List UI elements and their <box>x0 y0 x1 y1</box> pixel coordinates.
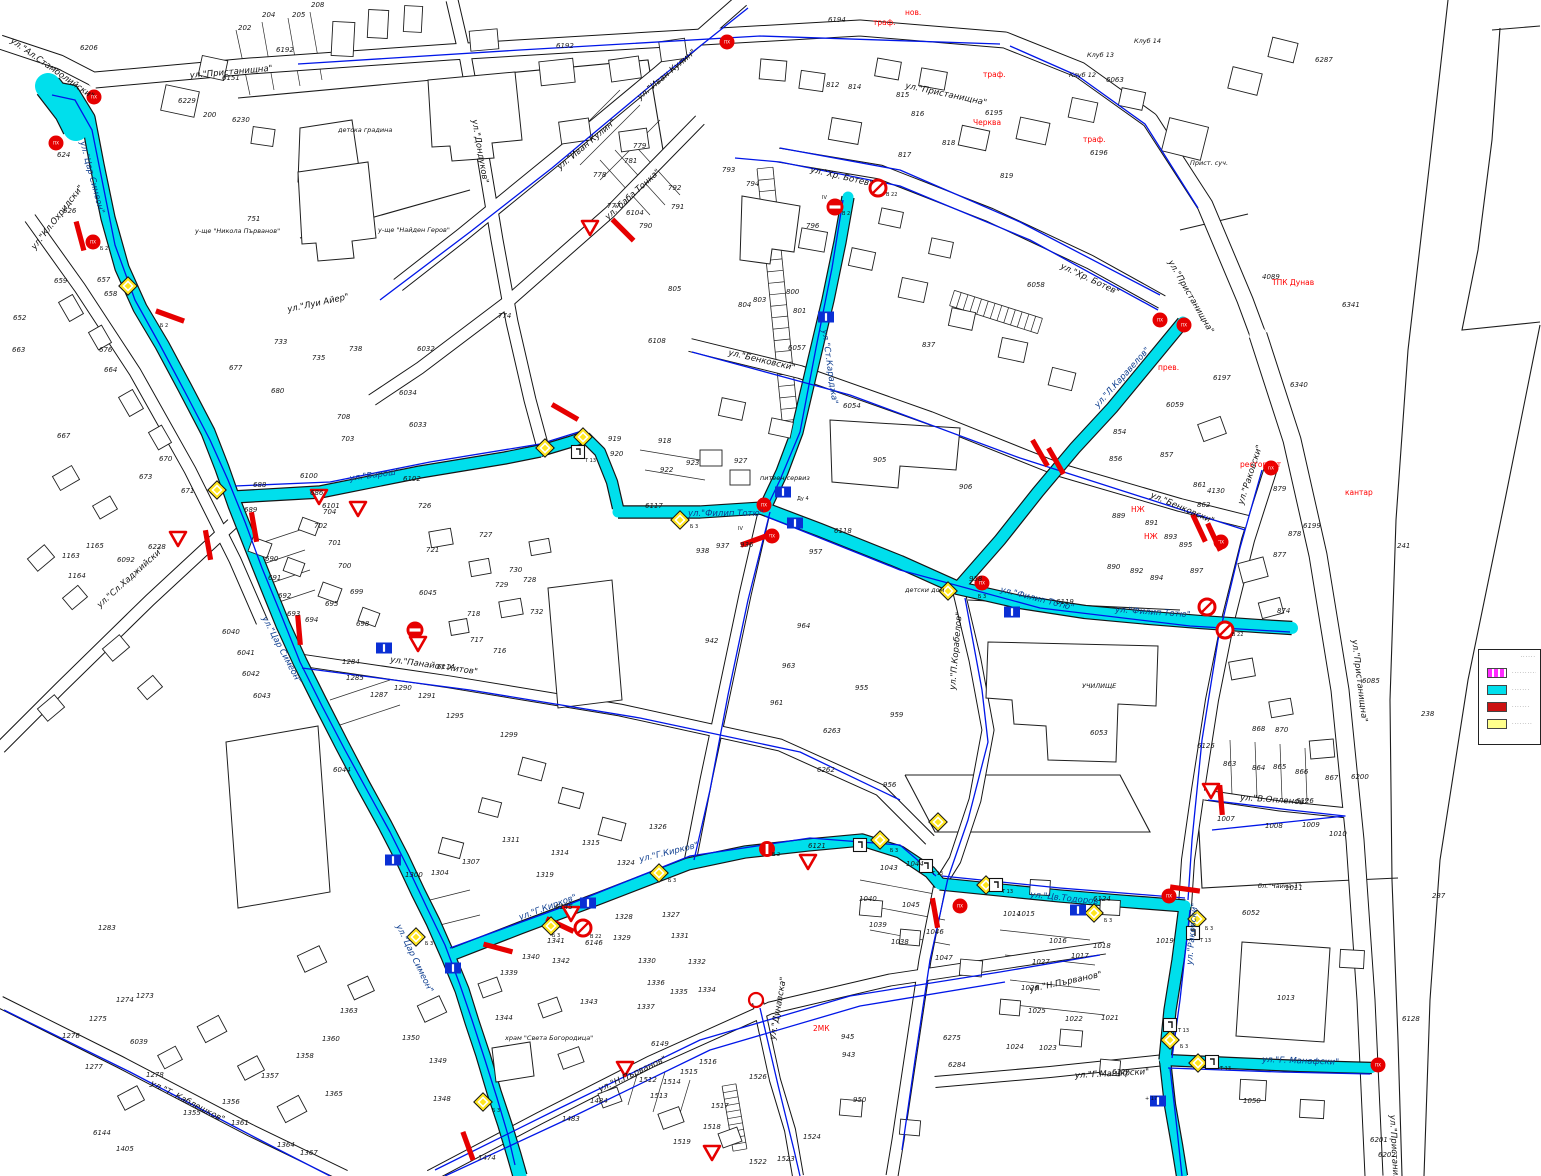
parcel-number: 6034 <box>399 389 417 397</box>
parcel-number: 905 <box>873 456 887 464</box>
parcel-number: 200 <box>203 111 217 119</box>
parcel-number: 677 <box>229 364 243 372</box>
parcel-number: 1026 <box>1021 984 1039 992</box>
parcel-number: 1328 <box>615 913 633 921</box>
svg-text:ПХ: ПХ <box>1181 323 1187 328</box>
parcel-number: 1349 <box>429 1057 447 1065</box>
parcel-number: 1329 <box>613 934 631 942</box>
parcel-number: 673 <box>139 473 152 481</box>
parcel-number: 942 <box>705 637 719 645</box>
red-annotation: прев. <box>1158 363 1179 372</box>
parcel-number: 6117 <box>645 502 663 510</box>
parcel-number: 1315 <box>582 839 600 847</box>
sign-code-label: Ду 4 <box>797 496 809 502</box>
parcel-number: 6118 <box>834 527 852 535</box>
parcel-number: 1512 <box>639 1076 657 1084</box>
parcel-number: 1356 <box>222 1098 240 1106</box>
parcel-number: 1287 <box>370 691 388 699</box>
parcel-number: 689 <box>244 506 258 514</box>
parcel-number: 6200 <box>1351 773 1369 781</box>
parcel-number: 1513 <box>650 1092 668 1100</box>
give-way-icon <box>350 502 366 516</box>
parcel-number: 6262 <box>817 766 835 774</box>
parcel-number: 698 <box>356 620 370 628</box>
chamber-icon <box>854 839 867 852</box>
parcel-number: 1324 <box>617 859 635 867</box>
parcel-number: 1008 <box>1265 822 1283 830</box>
parcel-number: 1334 <box>698 986 716 994</box>
parcel-number: 6119 <box>1056 598 1074 606</box>
parcel-number: 1327 <box>662 911 680 919</box>
legend-swatch-red <box>1487 702 1507 712</box>
parcel-number: 691 <box>268 574 281 582</box>
parcel-number: 6229 <box>178 97 196 105</box>
parcel-number: 1021 <box>1101 1014 1119 1022</box>
parcel-number: 1023 <box>1039 1044 1057 1052</box>
parcel-number: 708 <box>337 413 351 421</box>
parcel-number: 1047 <box>935 954 953 962</box>
parcel-number: 6058 <box>1027 281 1045 289</box>
hydrant-flag-icon <box>775 487 791 498</box>
parcel-number: 1358 <box>296 1052 314 1060</box>
parcel-number: 1355 <box>183 1109 201 1117</box>
parcel-number: 1331 <box>671 932 689 940</box>
parcel-number: 877 <box>1273 551 1287 559</box>
parcel-number: 624 <box>57 151 70 159</box>
crossing-bar-icon <box>611 218 636 243</box>
map-canvas[interactable]: ПХПХПХПХПХПХПХПХПХПХПХПХПХПХул."Ал.Стамб… <box>0 0 1541 1176</box>
parcel-number: 6197 <box>1213 374 1231 382</box>
parcel-number: 1040 <box>859 895 877 903</box>
parcel-number: 794 <box>746 180 759 188</box>
parcel-number: 1307 <box>462 858 480 866</box>
parcel-number: 964 <box>797 622 810 630</box>
parcel-number: 6102 <box>403 475 421 483</box>
chamber-icon <box>990 879 1003 892</box>
parcel-number: 690 <box>265 555 279 563</box>
sign-code-label: Т 13 <box>1177 1028 1189 1034</box>
buildings <box>27 6 1364 1148</box>
parcel-number: 781 <box>624 157 637 165</box>
parcel-number: 865 <box>1273 763 1287 771</box>
parcel-number: 6206 <box>80 44 98 52</box>
chamber-icon <box>572 446 585 459</box>
parcel-number: 1526 <box>749 1073 767 1081</box>
parcel-number: 1332 <box>688 958 706 966</box>
red-annotation: ресторант <box>1240 460 1282 469</box>
parcel-number: 864 <box>1252 764 1265 772</box>
parcel-number: 6202 <box>1378 1151 1396 1159</box>
parcel-number: 6196 <box>1090 149 1108 157</box>
hydrant-icon: ПХ <box>1371 1058 1386 1073</box>
sign-code-label: Б 3 <box>1205 926 1213 932</box>
parcel-number: 6057 <box>788 344 806 352</box>
parcel-number: 6128 <box>1402 1015 1420 1023</box>
parcel-number: 817 <box>898 151 912 159</box>
parcel-number: 792 <box>668 184 682 192</box>
svg-text:ПХ: ПХ <box>724 40 730 45</box>
parcel-number: 814 <box>848 83 861 91</box>
chamber-icon <box>1164 1019 1177 1032</box>
parcel-number: 943 <box>842 1051 855 1059</box>
give-way-icon <box>800 855 816 869</box>
parcel-number: 861 <box>1193 481 1206 489</box>
parcel-number: 1300 <box>405 871 423 879</box>
parcel-number: 1523 <box>777 1155 795 1163</box>
parcel-number: 1283 <box>98 924 116 932</box>
parcel-number: 688 <box>253 481 267 489</box>
parcel-number: 1019 <box>1156 937 1174 945</box>
parcel-number: 803 <box>753 296 766 304</box>
priority-road-sign-icon <box>929 813 947 831</box>
parcel-number: 1274 <box>116 996 134 1004</box>
parcel-number: 6100 <box>300 472 318 480</box>
poi-label: питеен сервиз <box>760 474 810 482</box>
sign-code-label: Б 3 <box>1180 1044 1188 1050</box>
parcel-number: 1017 <box>1071 952 1089 960</box>
sign-code-label: Б 3 <box>890 848 898 854</box>
parcel-number: 6063 <box>1106 76 1124 84</box>
parcel-number: 961 <box>770 699 783 707</box>
crossing-bar-icon <box>74 221 87 251</box>
parcel-number: 6059 <box>1166 401 1184 409</box>
parcel-number: 6041 <box>237 649 255 657</box>
parcel-number: 671 <box>181 487 194 495</box>
parcel-number: 241 <box>1397 542 1410 550</box>
parcel-number: 1365 <box>325 1090 343 1098</box>
parcel-number: 897 <box>1190 567 1204 575</box>
parcel-number: 818 <box>942 139 956 147</box>
sign-code-label: Б 3 <box>668 878 676 884</box>
svg-text:ПХ: ПХ <box>957 904 963 909</box>
parcel-number: 791 <box>671 203 684 211</box>
sign-code-label: Б 3 <box>552 933 560 939</box>
parcel-number: 6199 <box>1303 522 1321 530</box>
parcel-number: 238 <box>1421 710 1435 718</box>
road-ul-rakovski-n <box>1185 468 1271 906</box>
parcel-number: 1290 <box>394 684 412 692</box>
parcel-number: 727 <box>479 531 493 539</box>
parcel-number: 1015 <box>1017 910 1035 918</box>
parcel-number: 1483 <box>562 1115 580 1123</box>
parcel-number: 927 <box>734 457 748 465</box>
poi-label: у-ще "Найден Геров" <box>377 226 450 234</box>
sign-code-label: IV <box>738 526 743 532</box>
parcel-number: 6092 <box>117 556 135 564</box>
parcel-number: 664 <box>104 366 117 374</box>
parcel-number: 918 <box>658 437 672 445</box>
parcel-number: 1022 <box>1065 1015 1083 1023</box>
parcel-number: 1339 <box>500 969 518 977</box>
parcel-number: 6340 <box>1290 381 1308 389</box>
parcel-number: 863 <box>1223 760 1236 768</box>
parcel-number: 1007 <box>1217 815 1235 823</box>
parcel-number: 680 <box>271 387 285 395</box>
parcel-number: 205 <box>292 11 306 19</box>
parcel-number: 936 <box>740 541 754 549</box>
svg-text:ПХ: ПХ <box>761 503 767 508</box>
legend-item-striped: ·········· <box>1487 664 1536 681</box>
hydrant-flag-icon <box>787 518 803 529</box>
parcel-number: 868 <box>1252 725 1266 733</box>
poi-label: Клуб 12 <box>1069 71 1096 79</box>
parcel-number: 1024 <box>1006 1043 1024 1051</box>
red-annotation: траф. <box>983 70 1006 79</box>
parcel-number: 4130 <box>1207 487 1225 495</box>
sign-code-label: Б 2 <box>160 323 168 329</box>
parcel-number: 1016 <box>1049 937 1067 945</box>
parcel-number: 204 <box>262 11 275 19</box>
legend-swatch-cyan <box>1487 685 1507 695</box>
parcel-number: 1344 <box>495 1014 513 1022</box>
parcel-number: 889 <box>1112 512 1126 520</box>
street-label: ул."Н.Първанов" <box>596 1054 668 1095</box>
parcel-number: 1357 <box>261 1072 279 1080</box>
sign-code-label: Т 13 <box>1219 1066 1231 1072</box>
parcel-number: 652 <box>13 314 27 322</box>
street-label: ул."Филип Тотю" <box>687 509 764 519</box>
parcel-number: 1018 <box>1093 942 1111 950</box>
parcel-number: 957 <box>809 548 823 556</box>
parcel-number: 6033 <box>409 421 427 429</box>
parcel-number: 955 <box>855 684 869 692</box>
parcel-number: 1304 <box>431 869 449 877</box>
hydrant-icon: ПХ <box>1162 889 1177 904</box>
parcel-number: 1343 <box>580 998 598 1006</box>
parcel-number: 1295 <box>446 712 464 720</box>
parcel-number: 6194 <box>828 16 846 24</box>
parcel-number: 670 <box>159 455 173 463</box>
street-label: ул."Н.Първанов" <box>1028 970 1103 995</box>
street-label: ул."Пристанищна" <box>1387 1114 1401 1176</box>
sign-code-label: Т 13 <box>1199 938 1211 944</box>
hydrant-flag-icon <box>1070 905 1086 916</box>
parcel-number: 1163 <box>62 552 80 560</box>
red-annotation: траф. <box>1083 135 1106 144</box>
parcel-number: 1046 <box>926 928 944 936</box>
sign-code-label: Б 2 <box>100 246 108 252</box>
parcel-number: 1405 <box>116 1145 134 1153</box>
parcel-number: 878 <box>1288 530 1302 538</box>
parcel-number: 728 <box>523 576 537 584</box>
parcel-number: 6275 <box>943 1034 961 1042</box>
parcel-number: 751 <box>247 215 260 223</box>
parcel-number: 6228 <box>148 543 166 551</box>
svg-text:ПХ: ПХ <box>1157 318 1163 323</box>
svg-text:ПХ: ПХ <box>90 240 96 245</box>
parcel-number: 923 <box>686 459 699 467</box>
parcel-number: 1276 <box>62 1032 80 1040</box>
parcel-number: 704 <box>323 508 336 516</box>
parcel-number: 856 <box>1109 455 1123 463</box>
parcel-number: 895 <box>1179 541 1193 549</box>
parcel-number: 1164 <box>68 572 86 580</box>
parcel-number: 1013 <box>1277 994 1295 1002</box>
parcel-number: 1474 <box>478 1154 496 1162</box>
parcel-number: 693 <box>287 610 300 618</box>
red-annotation: Черква <box>973 118 1001 127</box>
sign-code-label: Б 3 <box>978 594 986 600</box>
no-stopping-icon <box>1199 599 1215 615</box>
parcel-number: 1361 <box>231 1119 249 1127</box>
street-label: ул."Т. Каблешков" <box>148 1078 226 1125</box>
parcel-number: 890 <box>1107 563 1121 571</box>
parcel-number: 6039 <box>130 1038 148 1046</box>
parcel-number: 894 <box>1150 574 1163 582</box>
sign-code-label: В 22 <box>1232 632 1243 638</box>
parcel-number: 667 <box>57 432 71 440</box>
parcel-number: 6126 <box>1296 797 1314 805</box>
parcel-number: 1519 <box>673 1138 691 1146</box>
parcel-number: 804 <box>738 301 751 309</box>
parcel-number: 6195 <box>985 109 1003 117</box>
parcel-number: 862 <box>1197 501 1211 509</box>
parcel-number: 694 <box>305 616 318 624</box>
crossing-bar-icon <box>155 308 185 323</box>
svg-text:ПХ: ПХ <box>53 141 59 146</box>
legend-swatch-magenta <box>1487 668 1507 678</box>
parcel-number: 774 <box>498 312 511 320</box>
parcel-number: 6108 <box>648 337 666 345</box>
parcel-number: 208 <box>311 1 325 9</box>
parcel-number: 937 <box>716 542 730 550</box>
parcel-number: 1335 <box>670 988 688 996</box>
poi-label: детска градина <box>337 126 392 134</box>
parcel-number: 945 <box>841 1033 855 1041</box>
hydrant-flag-icon <box>818 312 834 323</box>
parcel-number: 1319 <box>536 871 554 879</box>
parcel-number: 1299 <box>500 731 518 739</box>
parcel-number: 703 <box>341 435 354 443</box>
parcel-number: 1336 <box>647 979 665 987</box>
parcel-number: 6192 <box>556 42 574 50</box>
parcel-number: 1278 <box>146 1071 164 1079</box>
parcel-number: 721 <box>426 546 439 554</box>
parcel-number: 1284 <box>342 658 360 666</box>
hydrant-icon: ПХ <box>86 235 101 250</box>
parcel-number: 963 <box>782 662 795 670</box>
no-stopping-icon <box>1217 622 1233 638</box>
hydrant-icon: ПХ <box>1153 313 1168 328</box>
parcel-number: 1285 <box>346 674 364 682</box>
sign-code-label: Б 3 <box>690 524 698 530</box>
parcel-number: 1337 <box>637 1003 655 1011</box>
parcel-number: 6124 <box>1093 895 1111 903</box>
parcel-number: 738 <box>349 345 363 353</box>
svg-text:ПХ: ПХ <box>1166 894 1172 899</box>
parcel-number: 1340 <box>522 953 540 961</box>
map-stage: ПХПХПХПХПХПХПХПХПХПХПХПХПХПХул."Ал.Стамб… <box>0 0 1541 1176</box>
parcel-number: 866 <box>1295 768 1309 776</box>
parcel-number: 938 <box>696 547 710 555</box>
svg-text:ПХ: ПХ <box>1375 1063 1381 1068</box>
parcel-number: 6192 <box>276 46 294 54</box>
hydrant-icon: ПХ <box>953 899 968 914</box>
hydrant-flag-icon <box>376 643 392 654</box>
parcel-number: 6085 <box>1362 677 1380 685</box>
parcel-number: 800 <box>786 288 800 296</box>
parcel-number: 659 <box>54 277 68 285</box>
poi-label: Клуб 13 <box>1087 51 1114 59</box>
parcel-number: 1311 <box>502 836 520 844</box>
red-annotation: 2МК <box>813 1024 830 1033</box>
parcel-number: 1291 <box>418 692 436 700</box>
poi-label: УЧИЛИЩЕ <box>1082 682 1117 690</box>
parcel-number: 6045 <box>419 589 437 597</box>
hydrant-icon: ПХ <box>1177 318 1192 333</box>
parcel-number: 790 <box>639 222 653 230</box>
parcel-number: 1515 <box>680 1068 698 1076</box>
parcel-number: 6114 <box>437 663 455 671</box>
parcel-number: 729 <box>495 581 509 589</box>
legend-item-cyan: ······· <box>1487 681 1536 698</box>
parcel-number: 1314 <box>551 849 569 857</box>
parcel-number: 1038 <box>891 938 909 946</box>
cyan-street-ul-varosh-link <box>585 437 618 508</box>
parcel-number: 950 <box>853 1096 867 1104</box>
parcel-number: 695 <box>325 600 339 608</box>
parcel-number: 6201 <box>1370 1136 1388 1144</box>
parcel-number: 6146 <box>585 939 603 947</box>
parcel-number: 717 <box>470 636 484 644</box>
parcel-number: 1277 <box>85 1063 103 1071</box>
no-stopping-icon <box>575 920 591 936</box>
parcel-number: 1484 <box>590 1097 608 1105</box>
parcel-number: 658 <box>104 290 118 298</box>
parcel-number: 6230 <box>232 116 250 124</box>
parcel-number: 702 <box>314 522 328 530</box>
parcel-number: 1516 <box>699 1058 717 1066</box>
parcel-number: 892 <box>1130 567 1144 575</box>
parcel-number: 1326 <box>649 823 667 831</box>
parcel-number: 1273 <box>136 992 154 1000</box>
poi-label: детски дом <box>904 586 945 594</box>
parcel-number: 6054 <box>843 402 861 410</box>
street-label: ул."П.Корабелов" <box>948 612 965 692</box>
parcel-number: 1009 <box>1302 821 1320 829</box>
legend-header: ······ <box>1487 654 1536 664</box>
give-way-icon <box>170 532 186 546</box>
parcel-number: 819 <box>1000 172 1014 180</box>
red-annotation: нов. <box>905 8 921 17</box>
parcel-number: 1517 <box>711 1102 729 1110</box>
red-annotation: ТПК Дунав <box>1271 278 1314 287</box>
parcel-number: 837 <box>922 341 936 349</box>
sign-code-label: В 22 <box>886 192 897 198</box>
sign-code-label: Т 13 <box>1001 889 1013 895</box>
parcel-number: 870 <box>1275 726 1289 734</box>
parcel-number: 816 <box>911 110 925 118</box>
parcel-number: 1039 <box>869 921 887 929</box>
parcel-number: 922 <box>660 466 674 474</box>
street-label: ул."Ст.Караджа" <box>819 328 840 405</box>
parcel-number: 815 <box>896 91 910 99</box>
parcel-number: 959 <box>890 711 904 719</box>
parcel-number: 906 <box>959 483 973 491</box>
parcel-number: 726 <box>418 502 432 510</box>
parcel-number: 801 <box>793 307 806 315</box>
parcel-number: 891 <box>1145 519 1158 527</box>
parcel-number: 700 <box>338 562 352 570</box>
parcel-number: 1518 <box>703 1123 721 1131</box>
red-annotation: НЖ <box>1131 505 1145 514</box>
parcel-number: 805 <box>668 285 682 293</box>
parcel-number: 686 <box>310 489 324 497</box>
red-annotation: траф. <box>873 18 896 27</box>
sign-code-label: В 2 <box>772 852 780 858</box>
crossing-bar-icon <box>551 402 580 422</box>
hydrant-icon: ПХ <box>49 136 64 151</box>
